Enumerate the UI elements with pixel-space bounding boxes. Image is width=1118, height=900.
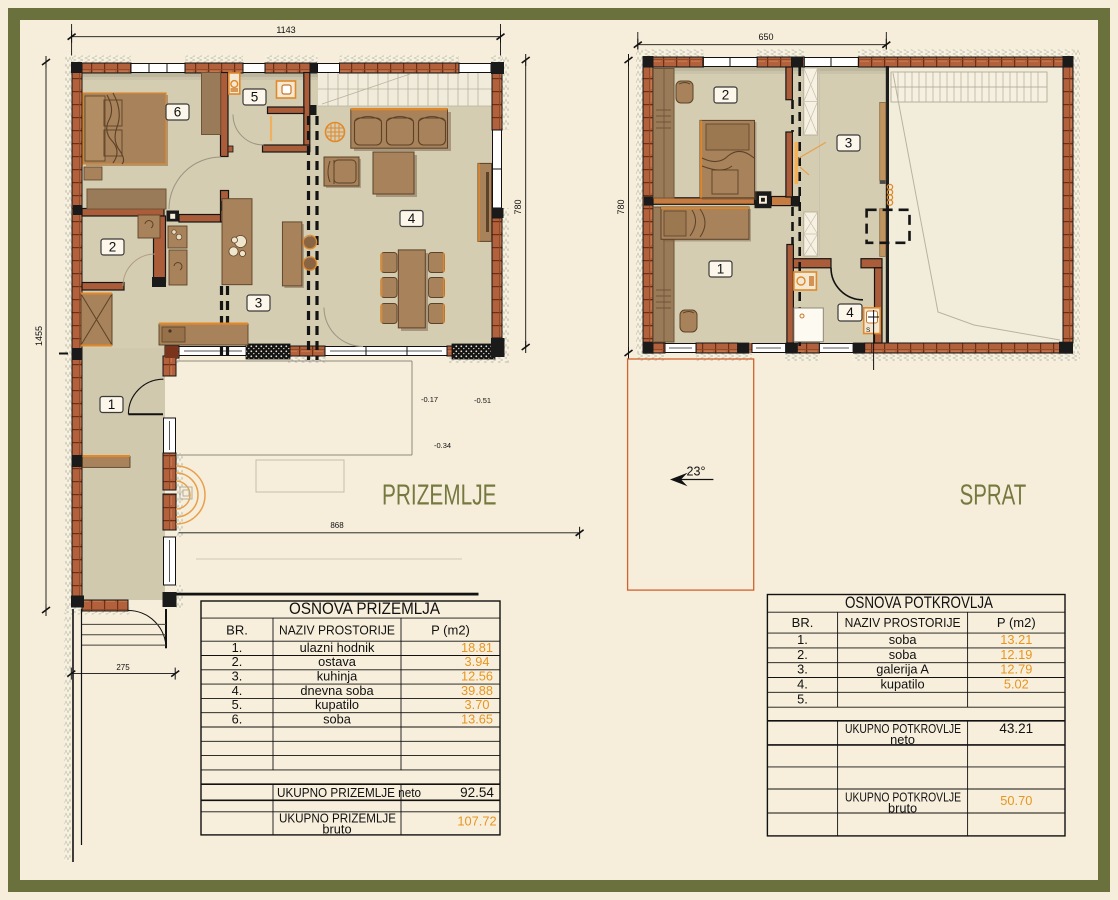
svg-text:13.65: 13.65 <box>461 711 493 726</box>
svg-text:23°: 23° <box>687 465 706 479</box>
svg-text:4: 4 <box>408 211 416 226</box>
svg-text:5: 5 <box>251 90 259 105</box>
svg-text:1: 1 <box>717 262 725 277</box>
svg-text:2: 2 <box>722 88 730 103</box>
svg-text:12.79: 12.79 <box>1000 662 1032 677</box>
svg-text:-0.34: -0.34 <box>434 441 451 450</box>
svg-text:bruto: bruto <box>322 822 351 837</box>
svg-text:4.: 4. <box>232 683 243 698</box>
svg-text:UKUPNO PRIZEMLJE neto: UKUPNO PRIZEMLJE neto <box>277 785 421 800</box>
svg-text:13.21: 13.21 <box>1000 632 1032 647</box>
svg-text:3.70: 3.70 <box>465 697 490 712</box>
svg-text:NAZIV PROSTORIJE: NAZIV PROSTORIJE <box>279 623 395 638</box>
svg-text:soba: soba <box>889 632 918 647</box>
svg-text:galerija A: galerija A <box>876 662 929 677</box>
svg-text:43.21: 43.21 <box>999 721 1033 736</box>
svg-text:5.02: 5.02 <box>1004 677 1029 692</box>
svg-text:1455: 1455 <box>34 326 44 346</box>
svg-text:275: 275 <box>116 663 130 672</box>
svg-text:3: 3 <box>255 296 263 311</box>
svg-text:soba: soba <box>323 711 352 726</box>
svg-text:P (m2): P (m2) <box>431 623 470 638</box>
svg-text:3: 3 <box>845 136 853 151</box>
svg-text:39.88: 39.88 <box>461 683 493 698</box>
svg-text:50.70: 50.70 <box>1000 793 1032 808</box>
svg-text:2.: 2. <box>232 654 243 669</box>
svg-text:92.54: 92.54 <box>460 785 494 800</box>
svg-text:PRIZEMLJE: PRIZEMLJE <box>382 480 497 512</box>
svg-text:3.: 3. <box>232 669 243 684</box>
svg-text:12.19: 12.19 <box>1000 647 1032 662</box>
svg-text:-0.51: -0.51 <box>474 396 491 405</box>
svg-text:SPRAT: SPRAT <box>960 480 1027 512</box>
svg-text:1: 1 <box>108 397 116 412</box>
svg-text:5.: 5. <box>232 697 243 712</box>
svg-text:bruto: bruto <box>888 801 917 816</box>
svg-text:S: S <box>866 327 871 334</box>
svg-text:OSNOVA PRIZEMLJA: OSNOVA PRIZEMLJA <box>289 599 441 618</box>
svg-text:BR.: BR. <box>226 623 248 638</box>
svg-text:3.: 3. <box>797 662 808 677</box>
svg-text:868: 868 <box>330 521 344 530</box>
svg-text:kuhinja: kuhinja <box>317 669 358 684</box>
svg-text:6.: 6. <box>232 711 243 726</box>
svg-text:780: 780 <box>513 199 523 214</box>
svg-text:NAZIV PROSTORIJE: NAZIV PROSTORIJE <box>845 615 961 630</box>
svg-text:6: 6 <box>174 105 182 120</box>
svg-text:1.: 1. <box>797 632 808 647</box>
svg-text:-0.17: -0.17 <box>421 395 438 404</box>
svg-text:4.: 4. <box>797 677 808 692</box>
svg-text:P (m2): P (m2) <box>997 615 1036 630</box>
svg-text:ulazni hodnik: ulazni hodnik <box>300 640 375 655</box>
svg-text:1143: 1143 <box>276 25 295 35</box>
svg-text:5.: 5. <box>797 691 808 706</box>
svg-text:4: 4 <box>846 305 854 320</box>
svg-text:dnevna soba: dnevna soba <box>300 683 374 698</box>
svg-text:1.: 1. <box>232 640 243 655</box>
svg-text:12.56: 12.56 <box>461 669 493 684</box>
svg-text:107.72: 107.72 <box>457 814 496 829</box>
svg-text:neto: neto <box>890 732 915 747</box>
svg-text:OSNOVA POTKROVLJA: OSNOVA POTKROVLJA <box>845 593 994 612</box>
svg-text:650: 650 <box>758 32 773 42</box>
svg-text:BR.: BR. <box>792 615 814 630</box>
svg-text:18.81: 18.81 <box>461 640 493 655</box>
svg-text:soba: soba <box>889 647 918 662</box>
svg-text:kupatilo: kupatilo <box>315 697 359 712</box>
svg-text:2.: 2. <box>797 647 808 662</box>
svg-text:kupatilo: kupatilo <box>881 677 925 692</box>
svg-text:2: 2 <box>109 240 117 255</box>
svg-text:3.94: 3.94 <box>465 654 490 669</box>
svg-text:ostava: ostava <box>318 654 357 669</box>
svg-text:780: 780 <box>616 199 626 214</box>
